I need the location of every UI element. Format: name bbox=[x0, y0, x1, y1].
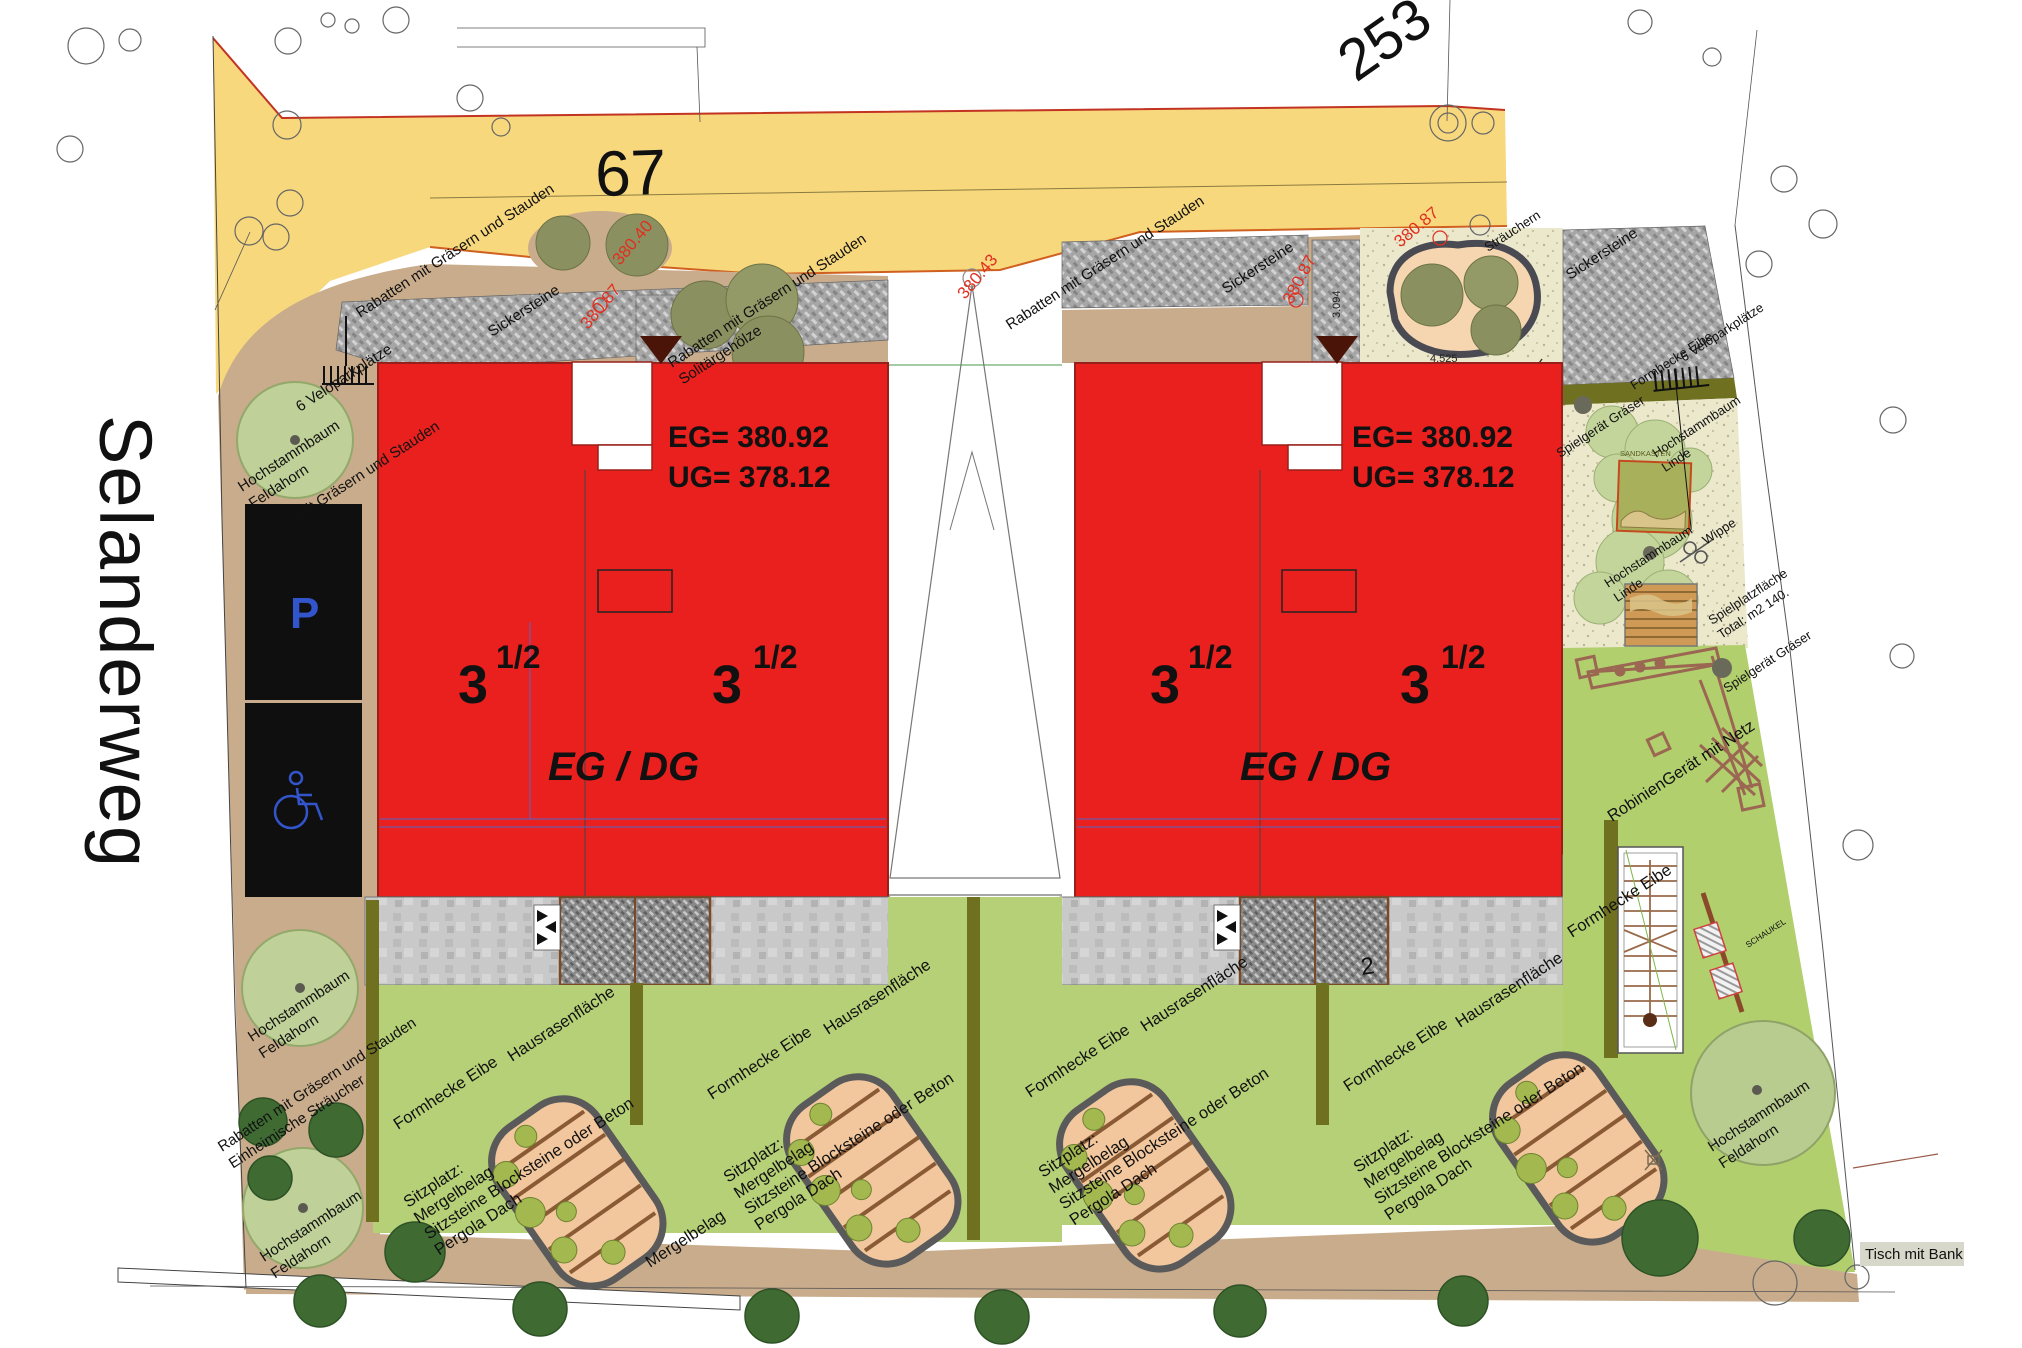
svg-text:UG= 378.12: UG= 378.12 bbox=[668, 461, 831, 494]
hedge bbox=[1604, 820, 1618, 1058]
svg-text:EG / DG: EG / DG bbox=[1240, 745, 1391, 789]
svg-text:UG= 378.12: UG= 378.12 bbox=[1352, 461, 1515, 494]
road-number: 67 bbox=[594, 136, 668, 210]
hedge bbox=[967, 897, 980, 1240]
site-plan-canvas: 2 P bbox=[0, 0, 2022, 1348]
svg-text:1/2: 1/2 bbox=[496, 639, 540, 675]
dim-bed: 4.525 bbox=[1430, 353, 1458, 365]
hedge bbox=[1316, 983, 1329, 1125]
svg-text:1/2: 1/2 bbox=[1188, 639, 1232, 675]
street-name: Selanderweg bbox=[84, 415, 167, 869]
site-plan: 2 P bbox=[0, 0, 2022, 1348]
label-sandkasten: SANDKASTEN bbox=[1620, 449, 1671, 458]
svg-text:1/2: 1/2 bbox=[753, 639, 797, 675]
dim-strip: 3.094 bbox=[1331, 290, 1343, 318]
paver-area-playground bbox=[1563, 226, 1734, 385]
building-2-notch-step bbox=[1288, 445, 1342, 470]
svg-text:1/2: 1/2 bbox=[1441, 639, 1485, 675]
svg-text:Tisch mit Bank: Tisch mit Bank bbox=[1865, 1246, 1963, 1263]
paving-south-2: 2 bbox=[1060, 897, 1563, 985]
svg-text:EG= 380.92: EG= 380.92 bbox=[1352, 421, 1513, 454]
paving-south-1 bbox=[365, 897, 890, 985]
svg-text:EG / DG: EG / DG bbox=[548, 745, 699, 789]
building-1-notch bbox=[572, 362, 652, 445]
svg-text:3: 3 bbox=[712, 655, 742, 715]
parking-sign: P bbox=[290, 589, 319, 638]
svg-text:3: 3 bbox=[1400, 655, 1430, 715]
shrub bbox=[1464, 256, 1518, 310]
building-2-notch bbox=[1262, 362, 1342, 445]
shrub bbox=[1401, 264, 1463, 326]
shrub bbox=[536, 216, 590, 270]
label-tisch: Tisch mit Bank bbox=[1860, 1242, 1964, 1266]
building-1-notch-step bbox=[598, 445, 652, 470]
shrub bbox=[1471, 305, 1521, 355]
svg-text:3: 3 bbox=[458, 655, 488, 715]
svg-text:EG= 380.92: EG= 380.92 bbox=[668, 421, 829, 454]
sandbox bbox=[1617, 461, 1691, 533]
svg-text:3: 3 bbox=[1150, 655, 1180, 715]
